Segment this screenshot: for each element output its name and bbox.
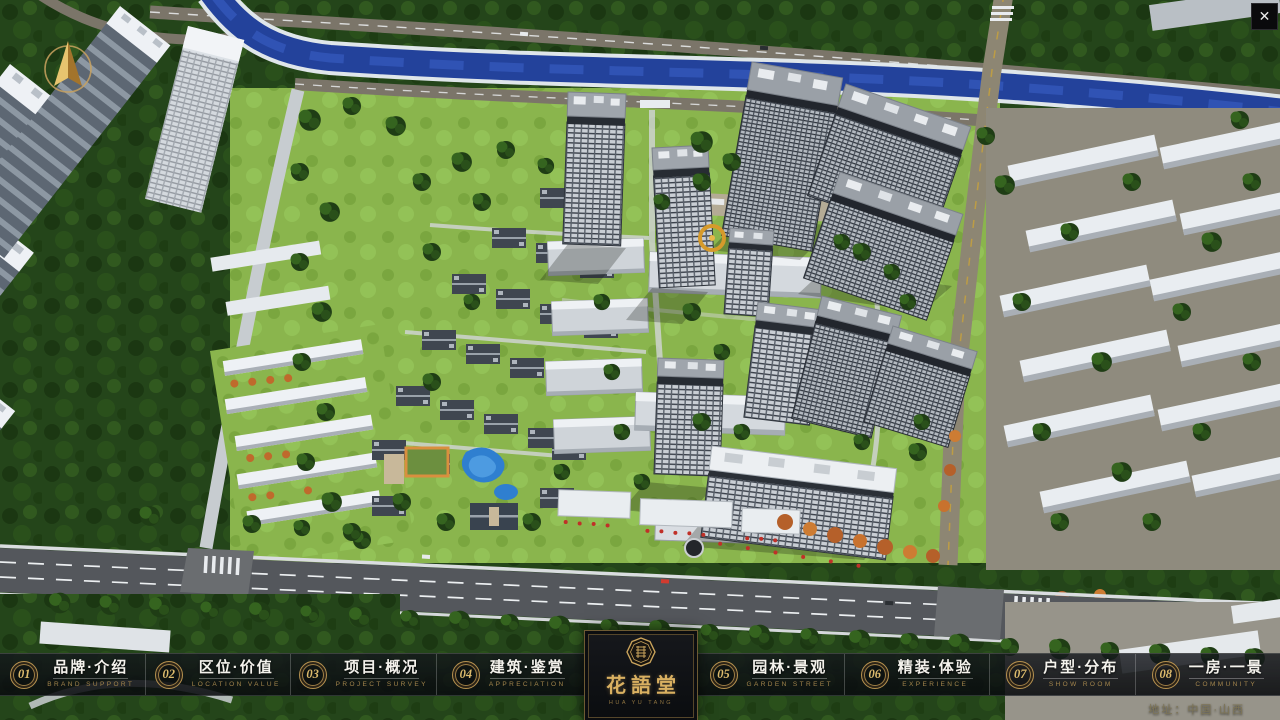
nav-label: 精装·体验 <box>898 660 973 680</box>
nav-number-badge: 06 <box>861 661 889 689</box>
nav-sublabel: BRAND SUPPORT <box>47 682 134 689</box>
nav-sublabel: LOCATION VALUE <box>192 682 281 689</box>
logo-tagline: HUA YU TANG <box>609 700 673 706</box>
aerial-masterplan-render[interactable] <box>0 0 1280 720</box>
logo-seal-icon <box>626 637 656 667</box>
nav-label: 建筑·鉴赏 <box>490 660 565 680</box>
nav-item-room-view[interactable]: 08 一房·一景 COMMUNITY <box>1136 654 1280 695</box>
nav-label: 品牌·介绍 <box>53 660 128 680</box>
nav-item-landscape[interactable]: 05 园林·景观 GARDEN STREET <box>699 654 844 695</box>
nav-item-interior-experience[interactable]: 06 精装·体验 EXPERIENCE <box>845 654 990 695</box>
nav-sublabel: SHOW ROOM <box>1049 682 1113 689</box>
nav-number-badge: 02 <box>155 661 183 689</box>
presentation-stage: ✕ 01 品牌·介绍 BRAND SUPPORT 02 区位·价值 LOCATI… <box>0 0 1280 720</box>
nav-label: 区位·价值 <box>199 660 274 680</box>
logo-panel[interactable]: 花語堂 HUA YU TANG <box>584 630 698 720</box>
nav-item-brand-intro[interactable]: 01 品牌·介绍 BRAND SUPPORT <box>0 654 145 695</box>
nav-item-floorplan-distribution[interactable]: 07 户型·分布 SHOW ROOM <box>990 654 1135 695</box>
logo-title: 花語堂 <box>601 669 681 698</box>
nav-sublabel: PROJECT SURVEY <box>336 682 428 689</box>
nav-number-badge: 03 <box>299 661 327 689</box>
nav-label: 一房·一景 <box>1189 660 1264 680</box>
close-button[interactable]: ✕ <box>1251 3 1278 30</box>
compass-north-icon <box>40 38 96 96</box>
nav-label: 项目·概况 <box>344 660 419 680</box>
nav-number-badge: 07 <box>1006 661 1034 689</box>
nav-sublabel: APPRECIATION <box>489 682 566 689</box>
nav-sublabel: COMMUNITY <box>1195 682 1257 689</box>
residential-tower <box>563 92 626 246</box>
nav-number-badge: 05 <box>710 661 738 689</box>
nav-label: 园林·景观 <box>752 660 827 680</box>
nav-label: 户型·分布 <box>1043 660 1118 680</box>
address-text: 地址：中国·山西 <box>1148 701 1245 717</box>
nav-item-project-overview[interactable]: 03 项目·概况 PROJECT SURVEY <box>291 654 436 695</box>
nav-number-badge: 04 <box>452 661 480 689</box>
nav-item-location-value[interactable]: 02 区位·价值 LOCATION VALUE <box>146 654 291 695</box>
nav-item-architecture[interactable]: 04 建筑·鉴赏 APPRECIATION <box>437 654 582 695</box>
nav-number-badge: 01 <box>10 661 38 689</box>
navbar-left-group: 01 品牌·介绍 BRAND SUPPORT 02 区位·价值 LOCATION… <box>0 654 581 695</box>
nav-number-badge: 08 <box>1152 661 1180 689</box>
close-icon: ✕ <box>1259 8 1271 25</box>
nav-sublabel: EXPERIENCE <box>902 682 968 689</box>
nav-sublabel: GARDEN STREET <box>747 682 833 689</box>
navbar-right-group: 05 园林·景观 GARDEN STREET 06 精装·体验 EXPERIEN… <box>699 654 1280 695</box>
